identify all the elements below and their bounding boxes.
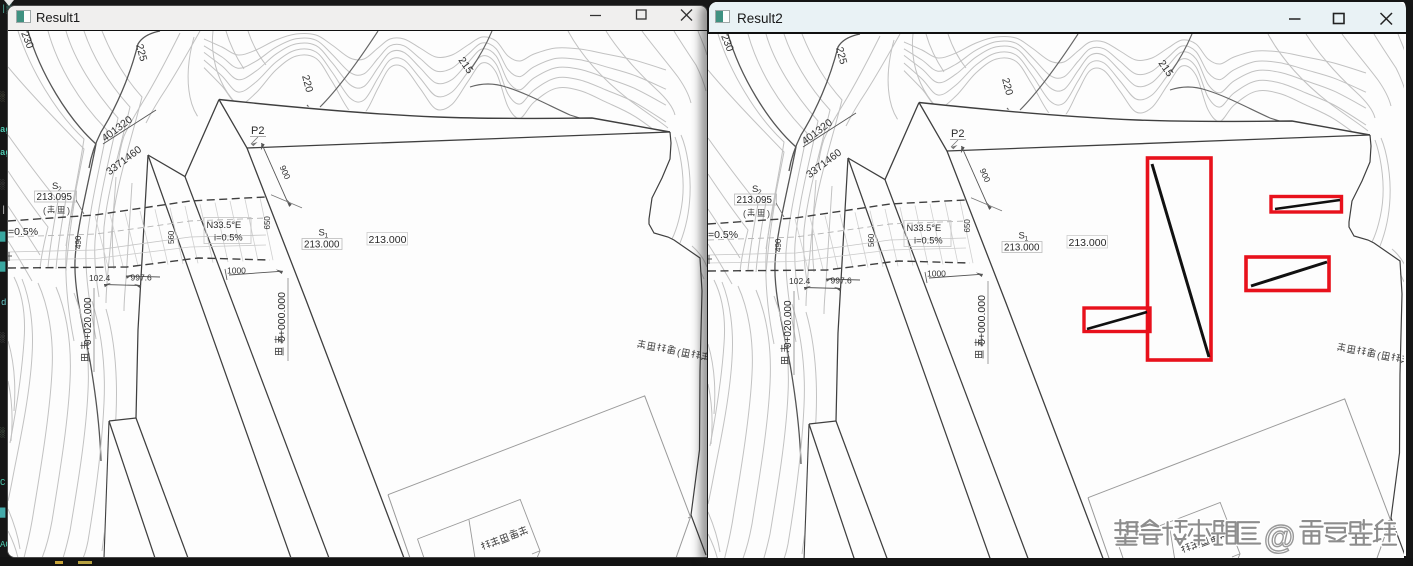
svg-text:@: @ — [1264, 519, 1295, 555]
